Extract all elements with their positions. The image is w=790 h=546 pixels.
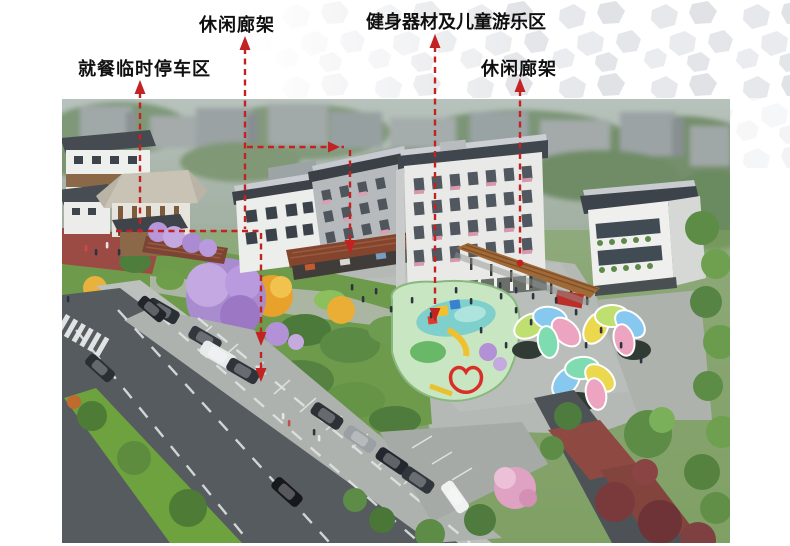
rendering-scene (0, 0, 790, 546)
annotated-rendering-page: 休闲廊架 健身器材及儿童游乐区 就餐临时停车区 休闲廊架 (0, 0, 790, 546)
annotation-label-dining-parking: 就餐临时停车区 (78, 55, 211, 81)
far-right-building (580, 180, 706, 296)
annotation-label-fitness-children-area: 健身器材及儿童游乐区 (366, 8, 546, 34)
annotation-label-leisure-gallery-top: 休闲廊架 (199, 11, 275, 37)
annotation-label-leisure-gallery-right: 休闲廊架 (481, 55, 557, 81)
